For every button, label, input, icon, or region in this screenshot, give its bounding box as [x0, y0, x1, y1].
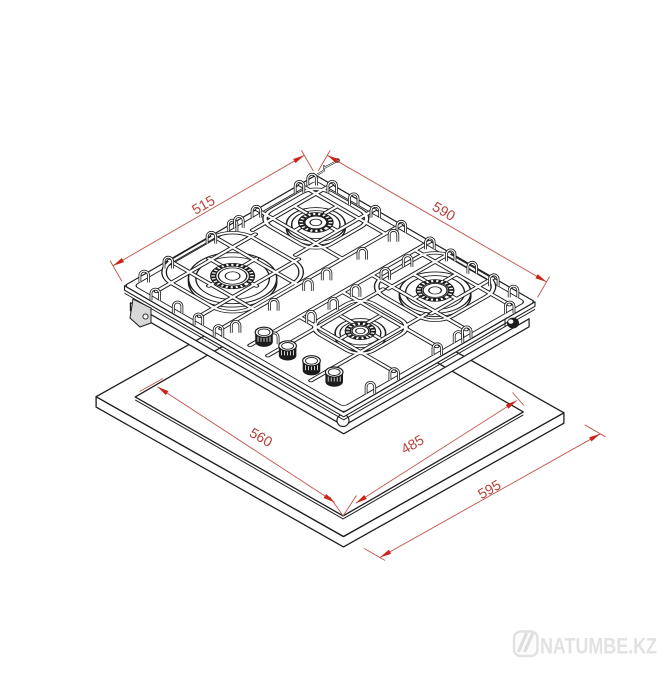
svg-text:NATUMBE.KZ: NATUMBE.KZ	[540, 634, 657, 659]
